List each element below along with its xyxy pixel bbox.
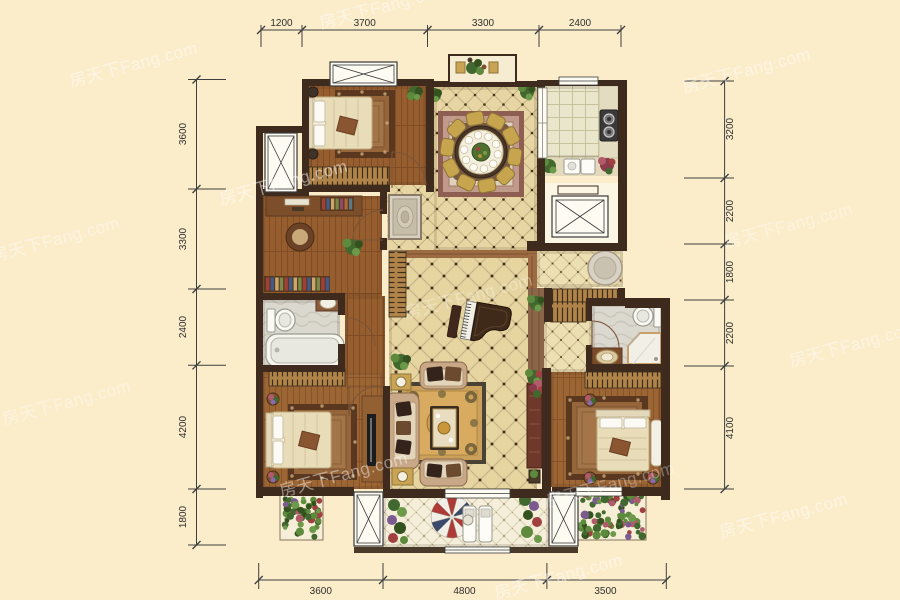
svg-text:3300: 3300	[178, 227, 189, 250]
svg-text:2400: 2400	[569, 18, 592, 29]
svg-text:1200: 1200	[270, 18, 293, 29]
svg-text:3200: 3200	[725, 117, 736, 140]
svg-text:3600: 3600	[310, 586, 333, 597]
svg-text:4200: 4200	[178, 415, 189, 438]
svg-text:3600: 3600	[178, 122, 189, 145]
svg-text:2200: 2200	[725, 199, 736, 222]
svg-text:3500: 3500	[594, 586, 617, 597]
svg-text:3300: 3300	[472, 18, 495, 29]
svg-text:2200: 2200	[725, 321, 736, 344]
svg-text:4100: 4100	[725, 416, 736, 439]
svg-text:4800: 4800	[453, 586, 476, 597]
svg-text:1800: 1800	[725, 260, 736, 283]
svg-text:2400: 2400	[178, 315, 189, 338]
svg-text:1800: 1800	[178, 505, 189, 528]
